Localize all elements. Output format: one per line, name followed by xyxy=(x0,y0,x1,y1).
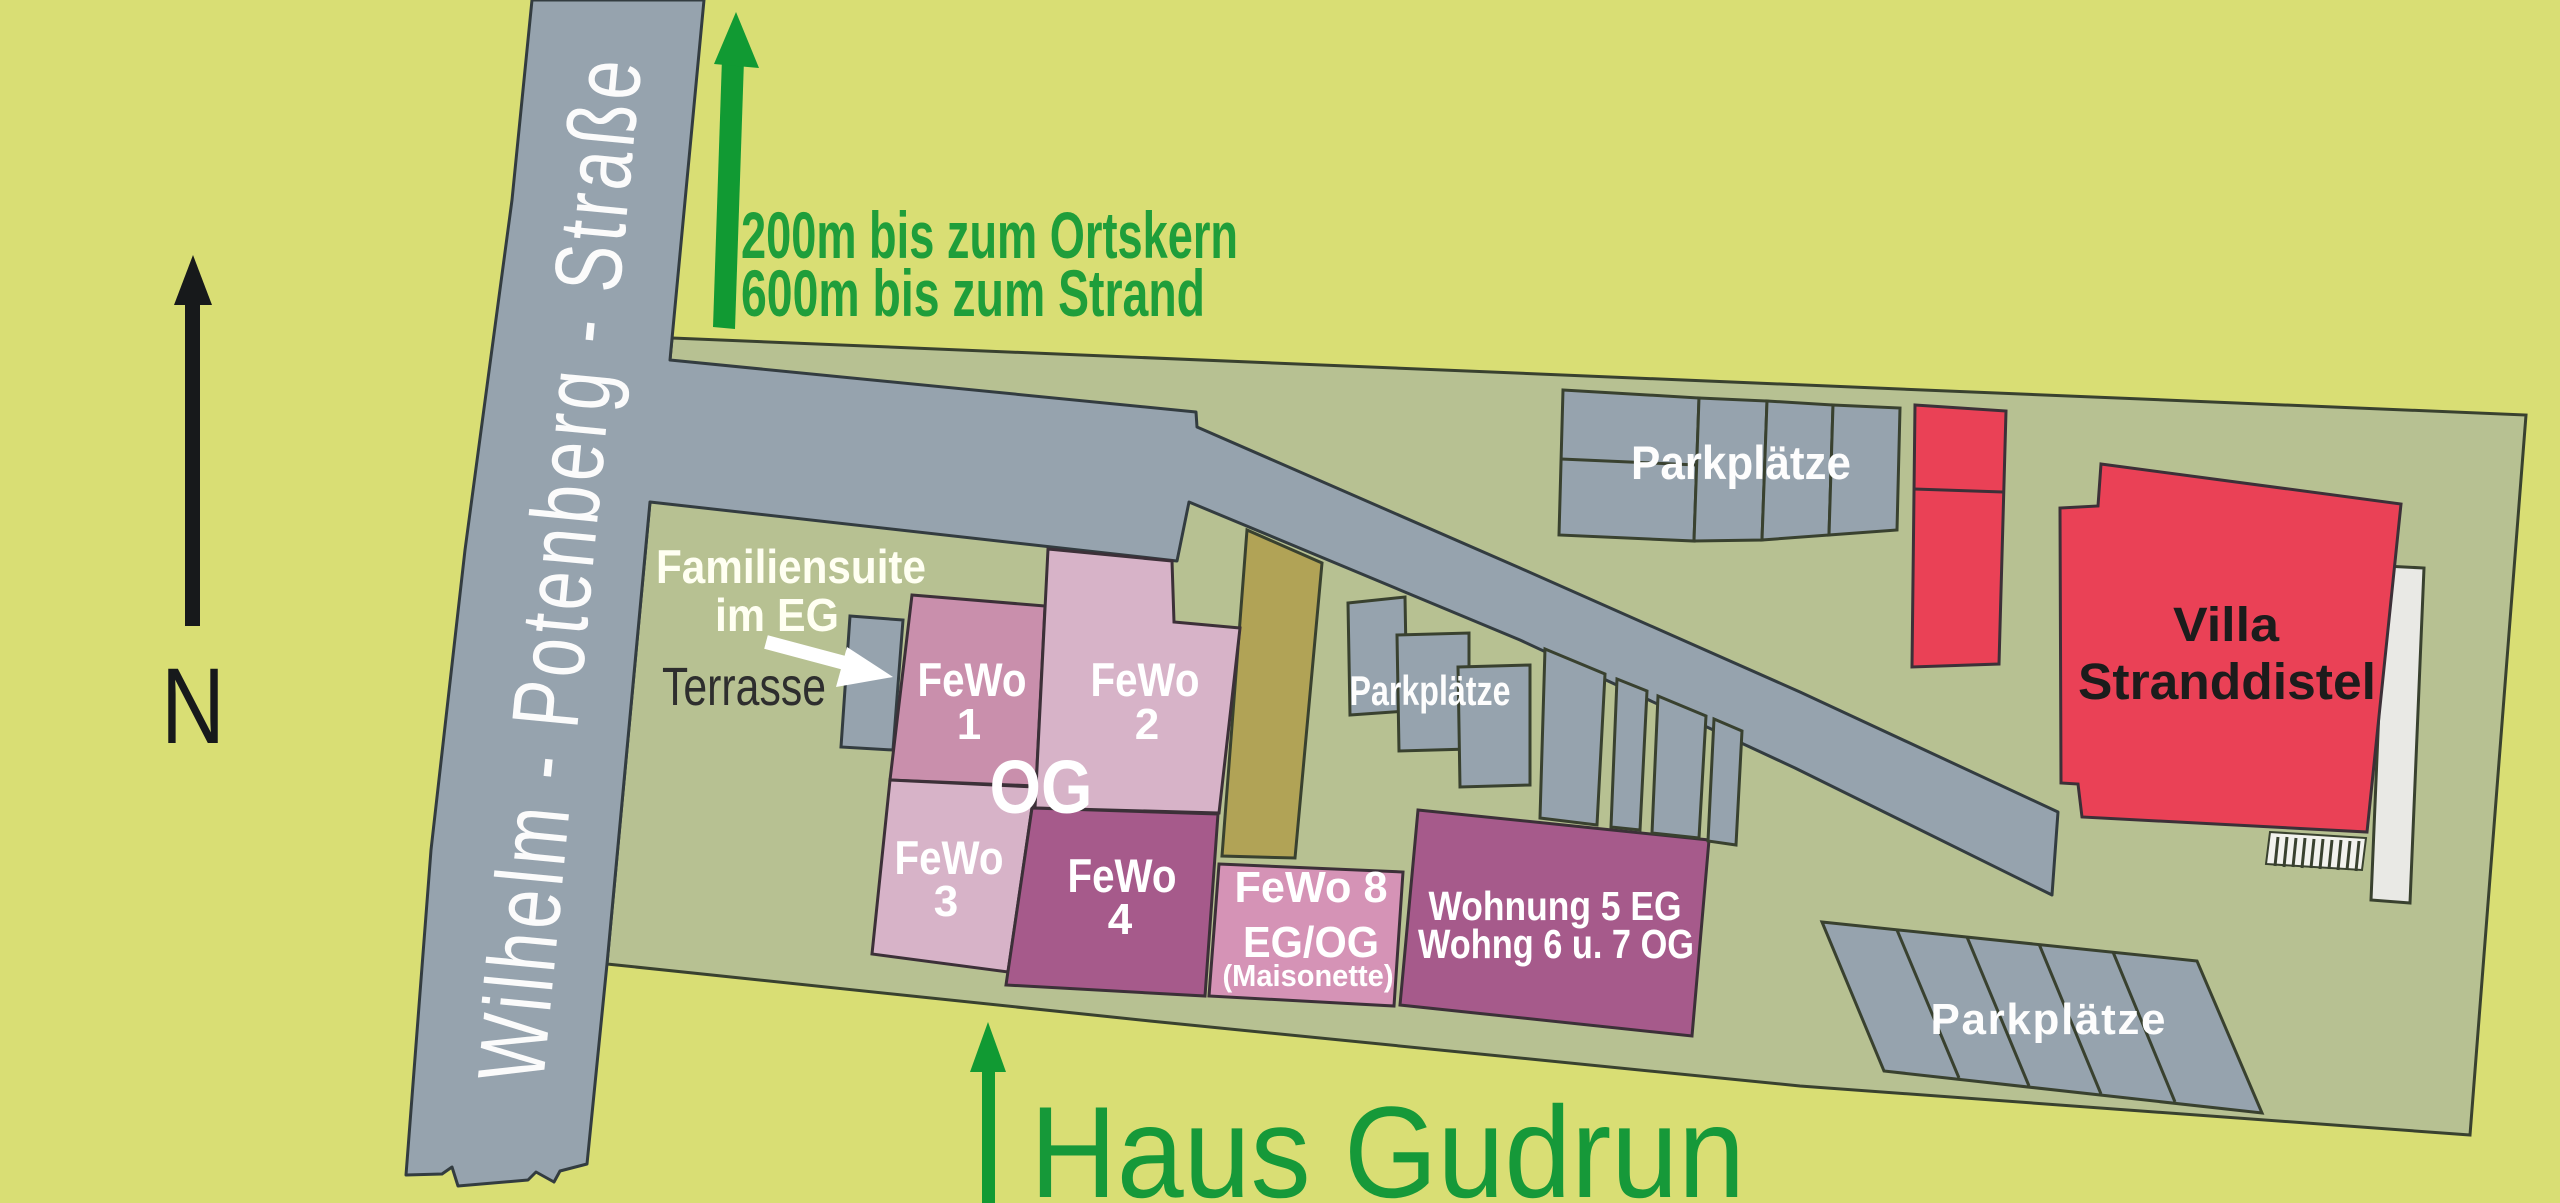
svg-text:Familiensuite: Familiensuite xyxy=(656,540,926,593)
svg-text:2: 2 xyxy=(1135,700,1159,749)
svg-text:im EG: im EG xyxy=(715,589,839,641)
svg-text:FeWo: FeWo xyxy=(918,653,1027,706)
svg-text:4: 4 xyxy=(1108,895,1133,944)
svg-text:1: 1 xyxy=(957,700,981,749)
svg-text:Wohng 6 u. 7 OG: Wohng 6 u. 7 OG xyxy=(1418,921,1694,967)
svg-text:FeWo: FeWo xyxy=(1091,653,1200,706)
svg-text:N: N xyxy=(161,645,225,766)
svg-text:3: 3 xyxy=(934,877,958,926)
svg-text:Parkplätze: Parkplätze xyxy=(1350,667,1511,714)
svg-text:Parkplätze: Parkplätze xyxy=(1631,436,1851,489)
svg-text:Haus Gudrun: Haus Gudrun xyxy=(1030,1079,1745,1203)
svg-text:Villa: Villa xyxy=(2173,599,2279,652)
svg-text:OG: OG xyxy=(990,745,1093,829)
svg-text:600m bis zum Strand: 600m bis zum Strand xyxy=(741,256,1205,330)
svg-text:Terrasse: Terrasse xyxy=(662,657,826,717)
svg-text:Stranddistel: Stranddistel xyxy=(2078,653,2376,710)
svg-text:(Maisonette): (Maisonette) xyxy=(1223,958,1394,993)
svg-text:Parkplätze: Parkplätze xyxy=(1931,995,2166,1044)
svg-text:FeWo 8: FeWo 8 xyxy=(1235,863,1388,912)
